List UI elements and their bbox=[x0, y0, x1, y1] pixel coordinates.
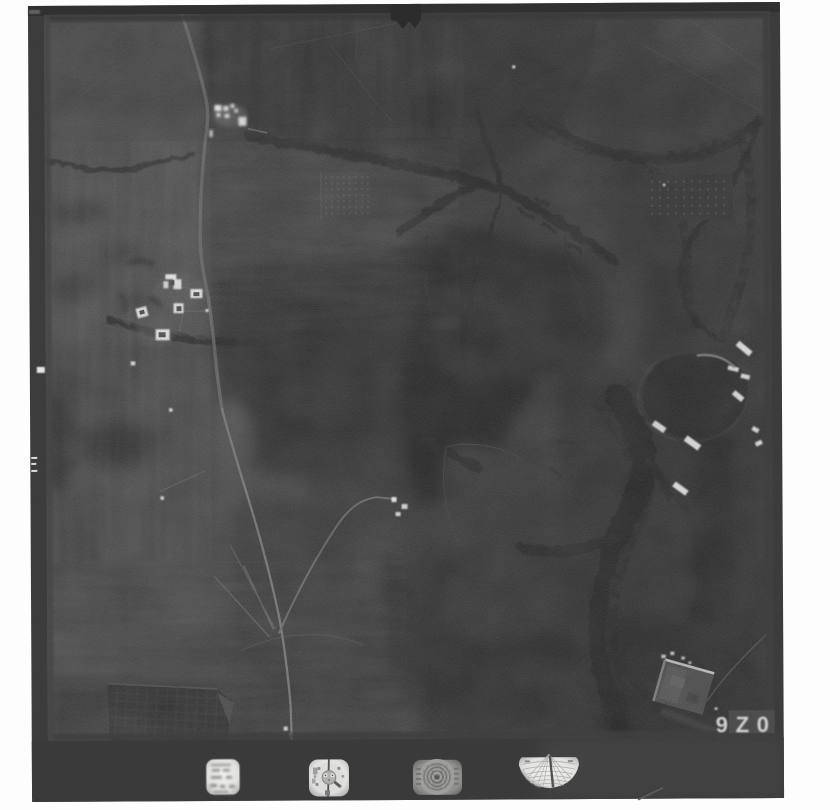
svg-text:9: 9 bbox=[716, 712, 728, 737]
svg-text:Z: Z bbox=[736, 712, 750, 737]
svg-text:0: 0 bbox=[757, 712, 769, 737]
